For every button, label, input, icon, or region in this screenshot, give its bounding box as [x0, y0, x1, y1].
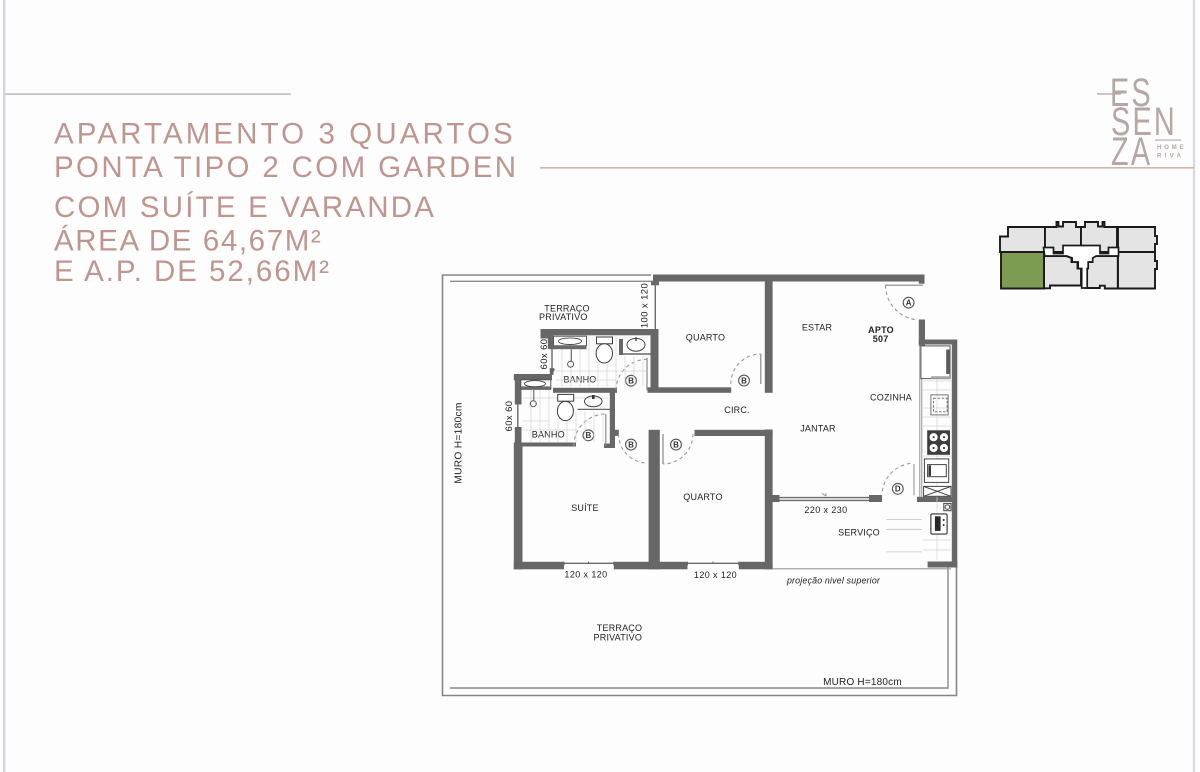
svg-text:BANHO: BANHO [532, 429, 565, 439]
svg-text:100 x 120: 100 x 120 [640, 283, 651, 328]
svg-text:B: B [628, 441, 634, 450]
svg-text:PRIVATIVO: PRIVATIVO [594, 632, 642, 642]
svg-text:B: B [586, 431, 592, 440]
svg-text:JANTAR: JANTAR [800, 423, 836, 433]
svg-text:projeção nivel superior: projeção nivel superior [786, 575, 881, 585]
svg-text:ZA: ZA [1111, 131, 1152, 174]
svg-text:CIRC.: CIRC. [724, 405, 750, 415]
svg-text:APARTAMENTO 3 QUARTOS: APARTAMENTO 3 QUARTOS [54, 118, 516, 151]
svg-text:60x 60: 60x 60 [504, 401, 515, 432]
svg-text:120 x 120: 120 x 120 [694, 570, 737, 580]
svg-text:MURO H=180cm: MURO H=180cm [823, 677, 902, 688]
svg-text:SUÍTE: SUÍTE [571, 503, 599, 513]
svg-text:60x 60: 60x 60 [539, 339, 550, 370]
svg-text:B: B [628, 377, 634, 386]
svg-text:E A.P. DE 52,66M²: E A.P. DE 52,66M² [54, 255, 331, 288]
svg-text:MURO H=180cm: MURO H=180cm [454, 402, 465, 483]
svg-text:SERVIÇO: SERVIÇO [838, 528, 880, 538]
svg-text:QUARTO: QUARTO [686, 332, 725, 342]
svg-text:RIVA: RIVA [1157, 153, 1184, 160]
svg-text:120 x 120: 120 x 120 [564, 570, 607, 580]
svg-text:PRIVATIVO: PRIVATIVO [539, 312, 587, 322]
svg-text:COM SUÍTE E VARANDA: COM SUÍTE E VARANDA [54, 191, 436, 224]
svg-text:220 x 230: 220 x 230 [804, 505, 847, 515]
svg-text:D: D [895, 485, 901, 494]
svg-text:TERRAÇO: TERRAÇO [597, 623, 642, 633]
svg-text:PONTA TIPO 2 COM GARDEN: PONTA TIPO 2 COM GARDEN [54, 151, 518, 184]
svg-text:507: 507 [873, 334, 889, 344]
svg-text:QUARTO: QUARTO [683, 492, 722, 502]
svg-text:B: B [741, 377, 747, 386]
svg-text:HOME: HOME [1157, 144, 1186, 151]
svg-text:ÁREA DE 64,67M²: ÁREA DE 64,67M² [54, 225, 322, 258]
svg-text:ESTAR: ESTAR [802, 322, 833, 332]
svg-text:COZINHA: COZINHA [870, 392, 912, 402]
svg-text:B: B [673, 441, 679, 450]
svg-text:A: A [906, 299, 912, 308]
